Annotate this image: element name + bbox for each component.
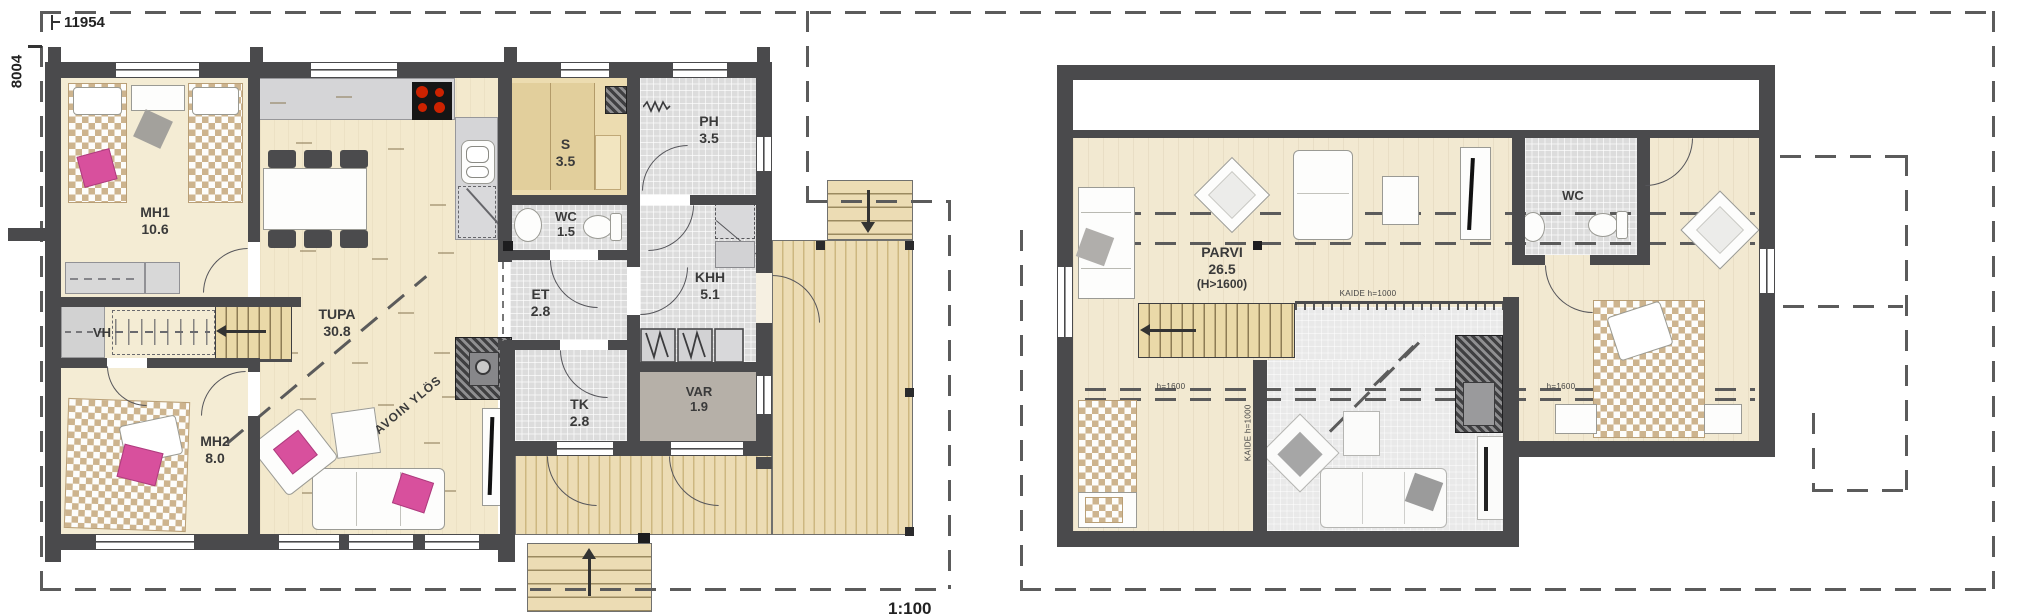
dimension-tick: [28, 45, 42, 48]
bed-pillow: [73, 87, 122, 115]
room-label-et: ET 2.8: [513, 286, 568, 319]
door-opening: [756, 273, 772, 323]
roof-dashed-line: [40, 11, 43, 589]
stairs-arrow-shaft: [226, 330, 266, 333]
wc-sink: [514, 208, 542, 242]
log-end: [757, 47, 770, 63]
room-area: 2.8: [513, 303, 568, 320]
room-label-ph: PH 3.5: [683, 113, 735, 146]
annotation-railing-vertical: KAIDE h=1000: [1243, 397, 1252, 469]
roof-dashed-line: [1085, 212, 1755, 215]
floor-plank-mark: [296, 142, 312, 144]
wall: [498, 195, 640, 205]
entrance-arrow-shaft: [867, 190, 870, 224]
window: [1057, 266, 1073, 338]
dresser-divider: [144, 263, 146, 293]
kitchen-sink: [461, 140, 495, 184]
armchair-cushion-pink: [273, 430, 318, 475]
window: [1759, 248, 1775, 294]
chimney-inner: [1463, 382, 1495, 426]
roof-dashed-line: [1905, 155, 1908, 490]
tv-bench-upper: [1460, 147, 1491, 240]
floor-plank-mark: [378, 404, 394, 406]
wall: [690, 195, 756, 205]
wall: [500, 340, 515, 552]
window: [348, 534, 414, 550]
room-label-var: VAR 1.9: [668, 384, 730, 415]
stove-burner: [418, 103, 427, 112]
roof-dashed-line: [1992, 11, 1995, 589]
room-area: 2.8: [552, 413, 607, 430]
room-label-tupa: TUPA 30.8: [302, 306, 372, 339]
room-name: MH1: [120, 204, 190, 221]
wall: [248, 78, 260, 242]
room-area: 3.5: [683, 130, 735, 147]
log-end: [504, 47, 517, 63]
wall: [640, 362, 756, 372]
window: [115, 62, 200, 78]
sauna-heater: [605, 86, 627, 114]
entrance-arrow-head: [582, 548, 596, 559]
room-area: 3.5: [543, 153, 588, 170]
floor-plank-mark: [424, 442, 440, 444]
room-label-vh: VH: [82, 325, 122, 340]
nightstand: [131, 85, 185, 111]
room-name: PARVI: [1179, 244, 1265, 261]
roof-dashed-line: [40, 588, 948, 591]
dresser-dash: [70, 278, 140, 280]
entrance-arrow-shaft: [588, 558, 591, 596]
nightstand: [1704, 404, 1742, 434]
wc-upper-toilet-bowl: [1588, 213, 1618, 237]
void-table: [1343, 411, 1380, 456]
room-name: VH: [82, 325, 122, 340]
room-name: PH: [683, 113, 735, 130]
void-sofa: [1320, 468, 1447, 528]
window: [95, 534, 195, 550]
wall: [608, 340, 640, 350]
window: [672, 62, 728, 78]
wall: [1253, 360, 1267, 531]
room-area: 30.8: [302, 323, 372, 340]
wall: [1057, 65, 1775, 80]
room-label-mh1: MH1 10.6: [120, 204, 190, 237]
khh-cabinet: [715, 241, 755, 268]
roof-dashed-line: [1812, 413, 1815, 490]
void-tv-icon: [1484, 447, 1488, 511]
roof-dashed-line: [1780, 155, 1905, 158]
daybed-seam: [1297, 193, 1349, 194]
laundry-basket: [715, 203, 755, 239]
window: [756, 375, 772, 415]
window: [556, 441, 614, 456]
room-area: 1.9: [668, 399, 730, 414]
dining-chair: [340, 230, 368, 248]
deck-post: [905, 388, 914, 397]
floor-plank-mark: [300, 250, 316, 252]
room-area: 1.5: [540, 224, 592, 239]
wall: [61, 297, 301, 307]
wall: [1057, 531, 1517, 547]
dining-chair: [268, 230, 296, 248]
deck-post: [816, 241, 825, 250]
deck-post: [905, 527, 914, 536]
log-end: [8, 228, 45, 241]
tv-icon: [488, 417, 495, 495]
wall: [147, 358, 260, 368]
heater-electric-icon: [643, 99, 671, 114]
sofa-seam: [356, 472, 357, 526]
room-area: 10.6: [120, 221, 190, 238]
room-label-s: S 3.5: [543, 136, 588, 169]
entrance-arrow-head: [861, 222, 875, 233]
dimension-width-label: 11954: [64, 14, 105, 31]
wall: [627, 315, 640, 441]
roof-dashed-line: [40, 11, 1992, 14]
stove: [412, 82, 452, 120]
room-name: WC: [540, 209, 592, 224]
floor-plank-mark: [388, 148, 404, 150]
fireplace-ring: [475, 359, 491, 375]
window: [670, 441, 744, 456]
open-threshold: [502, 262, 504, 341]
window: [756, 136, 772, 172]
section-marker: [503, 241, 513, 251]
stairs-ground: [215, 305, 292, 360]
sink-basin: [466, 166, 489, 178]
chimney: [1455, 335, 1503, 433]
floor-plank-mark: [372, 258, 388, 260]
window: [310, 62, 398, 78]
wall: [498, 340, 560, 350]
annotation-height-right: h=1600: [1538, 382, 1584, 391]
wardrobe-hangers: [115, 319, 210, 345]
floor-plank-mark: [398, 312, 414, 314]
bed-line: [1081, 268, 1131, 269]
roof-dashed-line: [948, 200, 951, 589]
scale-label: 1:100: [888, 599, 931, 616]
log-end: [45, 550, 61, 562]
stove-burner: [434, 102, 445, 113]
window: [278, 534, 340, 550]
room-label-khh: KHH 5.1: [680, 269, 740, 302]
bed-pillow-checker: [1085, 497, 1123, 523]
stairs-upper-arrow-head: [1140, 324, 1150, 336]
wall: [1503, 441, 1775, 457]
wc-toilet-tank: [610, 213, 622, 241]
floor-plan-canvas: 11954 8004 1:100: [0, 0, 2024, 616]
wall: [627, 195, 640, 267]
roof-dashed-line: [1020, 588, 1992, 591]
dishwasher: [458, 186, 496, 238]
sink-basin: [466, 146, 489, 163]
annotation-railing: KAIDE h=1000: [1328, 289, 1408, 298]
section-marker: [638, 533, 650, 543]
floor-plank-mark: [430, 204, 446, 206]
wall: [45, 62, 61, 550]
bed-single-upper: [1078, 400, 1137, 495]
annotation-height-left: h=1600: [1148, 382, 1194, 391]
wall: [1073, 130, 1759, 138]
tv-icon: [1467, 158, 1475, 230]
stove-burner: [416, 86, 428, 98]
room-name: ET: [513, 286, 568, 303]
log-end: [250, 47, 263, 63]
room-area: 26.5: [1179, 261, 1265, 278]
wall: [61, 358, 107, 368]
room-area: 8.0: [180, 450, 250, 467]
room-label-wc-upper: WC: [1548, 188, 1598, 203]
log-end: [756, 457, 772, 469]
floor-plank-mark: [438, 252, 454, 254]
floor-plank-mark: [270, 102, 286, 104]
bed-pillow: [192, 87, 239, 115]
room-name: MH2: [180, 433, 250, 450]
armchair-seat: [1696, 206, 1744, 254]
roof-dashed-line: [1020, 230, 1023, 589]
khh-appliances-icon: [640, 328, 758, 364]
nightstand: [1555, 404, 1597, 434]
log-end: [48, 47, 61, 63]
wall: [1590, 255, 1650, 265]
wall: [627, 78, 640, 195]
mh1-dresser: [65, 262, 180, 294]
room-name: TUPA: [302, 306, 372, 323]
deck-post: [905, 241, 914, 250]
floor-plank-mark: [336, 96, 352, 98]
void-armchair-cushion: [1277, 432, 1322, 477]
room-name: TK: [552, 396, 607, 413]
dining-table: [263, 168, 367, 230]
void-railing-ticks: [1295, 304, 1503, 310]
dining-chair: [268, 150, 296, 168]
side-table-upper: [1382, 176, 1419, 225]
sauna-bench-step: [595, 135, 621, 190]
dining-chair: [340, 150, 368, 168]
room-area: 5.1: [680, 286, 740, 303]
wall: [1503, 297, 1519, 547]
window: [424, 534, 480, 550]
room-label-parvi: PARVI 26.5 (H>1600): [1179, 244, 1265, 291]
wall: [248, 358, 260, 372]
window: [560, 62, 610, 78]
room-name: VAR: [668, 384, 730, 399]
floor-plank-mark: [434, 352, 450, 354]
dimension-tick: [51, 21, 60, 23]
wall: [498, 250, 550, 260]
armchair-seat: [1208, 171, 1256, 219]
log-end: [498, 550, 515, 562]
wall: [498, 78, 512, 262]
bed-line: [1081, 212, 1131, 213]
wall: [1512, 138, 1525, 265]
room-note: (H>1600): [1179, 277, 1265, 291]
void-sofa-cushion: [1405, 473, 1443, 511]
dimension-height-label: 8004: [9, 46, 26, 98]
wall: [1512, 255, 1545, 265]
room-name: KHH: [680, 269, 740, 286]
stairs-upper-arrow-shaft: [1150, 329, 1196, 332]
void-tv-bench: [1477, 436, 1504, 520]
dining-chair: [304, 150, 332, 168]
roof-dashed-line: [806, 11, 809, 201]
daybed-upper: [1293, 150, 1353, 240]
wardrobe-dashed: [112, 310, 215, 355]
floor-plank-mark: [352, 362, 368, 364]
room-label-tk: TK 2.8: [552, 396, 607, 429]
stove-burner: [435, 88, 444, 97]
void-sofa-seam: [1362, 472, 1363, 524]
room-label-mh2: MH2 8.0: [180, 433, 250, 466]
room-name: S: [543, 136, 588, 153]
wc-upper-toilet-tank: [1616, 211, 1628, 239]
roof-dashed-line: [1783, 305, 1903, 308]
roof-dashed-line: [1812, 489, 1905, 492]
room-label-wc: WC 1.5: [540, 209, 592, 240]
stairs-arrow-head: [216, 325, 226, 337]
floor-plank-mark: [300, 398, 316, 400]
roof-dashed-line: [806, 200, 948, 203]
room-name: WC: [1548, 188, 1598, 203]
dining-chair: [304, 230, 332, 248]
